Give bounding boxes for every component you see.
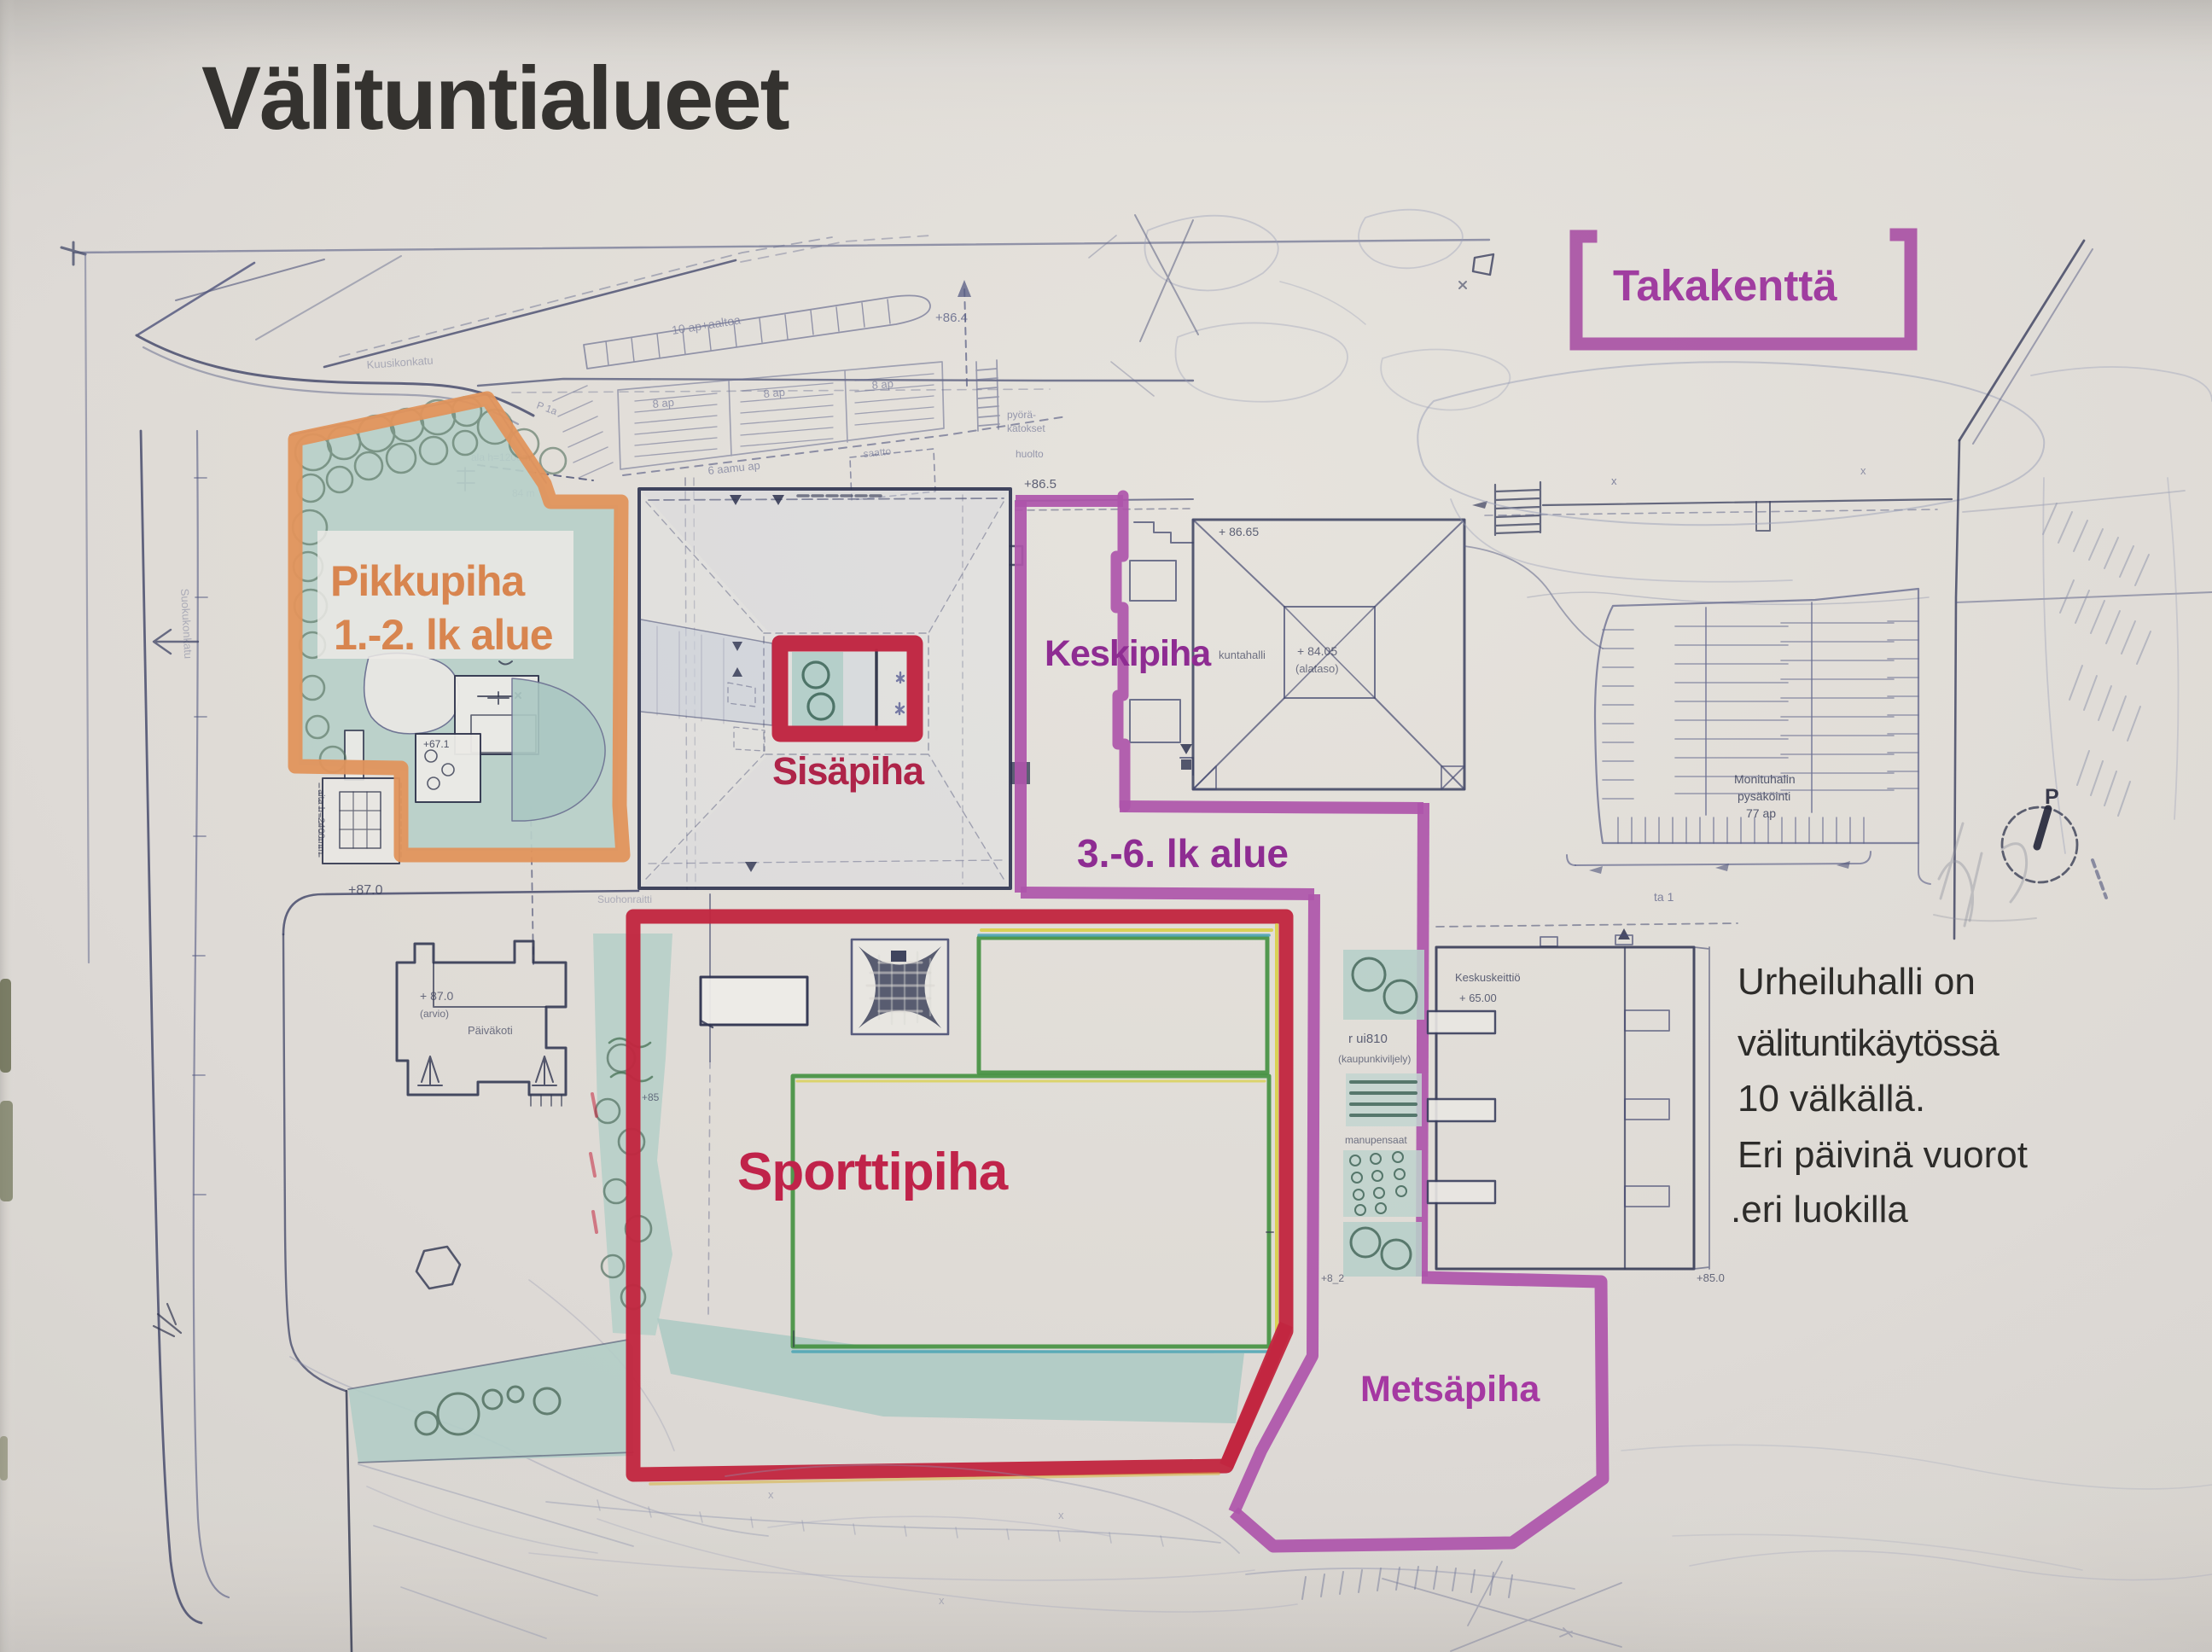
svg-text:välituntikäytössä: välituntikäytössä: [1738, 1022, 2000, 1064]
svg-text:+85: +85: [642, 1091, 660, 1103]
svg-text:ta 1: ta 1: [1654, 890, 1674, 904]
svg-text:manupensaat: manupensaat: [1345, 1134, 1407, 1146]
svg-text:kuntahalli: kuntahalli: [1219, 649, 1266, 661]
svg-text:x: x: [1058, 1509, 1064, 1521]
svg-text:+ 86.65: + 86.65: [1219, 525, 1259, 538]
svg-text:(kaupunkiviljely): (kaupunkiviljely): [1338, 1053, 1411, 1065]
svg-text:+85.0: +85.0: [1697, 1271, 1725, 1284]
svg-text:1.-2. lk alue: 1.-2. lk alue: [334, 611, 553, 659]
svg-text:3.-6. lk alue: 3.-6. lk alue: [1077, 831, 1289, 875]
svg-text:Suohonraitti: Suohonraitti: [597, 893, 652, 905]
svg-text:huolto: huolto: [1016, 448, 1044, 460]
svg-text:Keskuskeittiö: Keskuskeittiö: [1455, 971, 1521, 984]
svg-text:x: x: [1860, 464, 1866, 477]
svg-text:Sporttipiha: Sporttipiha: [737, 1143, 1009, 1201]
svg-text:8 ap: 8 ap: [871, 377, 894, 392]
svg-text:+ 84.05: + 84.05: [1297, 644, 1337, 658]
svg-text:r ui810: r ui810: [1348, 1032, 1388, 1046]
svg-text:+86.4: +86.4: [935, 311, 968, 325]
svg-text:+8_2: +8_2: [1321, 1272, 1344, 1284]
svg-text:Takakenttä: Takakenttä: [1613, 261, 1837, 310]
svg-text:x: x: [1611, 474, 1617, 487]
svg-text:8 ap: 8 ap: [763, 386, 786, 400]
svg-text:Keskipiha: Keskipiha: [1045, 633, 1212, 674]
svg-text:Monituhalin: Monituhalin: [1734, 772, 1796, 786]
svg-text:77 ap: 77 ap: [1746, 806, 1776, 820]
svg-text:+86.5: +86.5: [1024, 477, 1057, 492]
svg-text:katokset: katokset: [1007, 422, 1045, 434]
svg-text:(alataso): (alataso): [1295, 662, 1339, 675]
svg-text:x: x: [768, 1488, 774, 1501]
svg-text:Päiväkoti: Päiväkoti: [468, 1024, 513, 1037]
svg-text:+87.0: +87.0: [348, 883, 383, 898]
svg-text:x: x: [939, 1594, 945, 1607]
svg-text:Sisäpiha: Sisäpiha: [772, 749, 925, 793]
svg-text:+ 87.0: + 87.0: [420, 989, 454, 1003]
svg-text:aita h=2400mm: aita h=2400mm: [316, 789, 326, 854]
svg-text:Välituntialueet: Välituntialueet: [201, 49, 789, 148]
svg-text:+ 65.00: + 65.00: [1459, 992, 1497, 1004]
svg-text:Pikkupiha: Pikkupiha: [330, 557, 526, 605]
svg-text:Eri päivinä vuorot: Eri päivinä vuorot: [1738, 1134, 2028, 1176]
svg-text:(arvio): (arvio): [420, 1008, 449, 1020]
svg-text:pyörä-: pyörä-: [1007, 409, 1036, 421]
svg-text:P: P: [2045, 785, 2059, 809]
svg-text:Metsäpiha: Metsäpiha: [1360, 1369, 1540, 1410]
svg-text:+67.1: +67.1: [423, 738, 450, 750]
svg-text:.eri luokilla: .eri luokilla: [1731, 1189, 1908, 1230]
svg-text:Urheiluhalli on: Urheiluhalli on: [1738, 961, 1976, 1003]
svg-text:pysäköinti: pysäköinti: [1738, 789, 1790, 803]
svg-text:8 ap: 8 ap: [652, 396, 675, 410]
svg-text:10 välkällä.: 10 välkällä.: [1738, 1078, 1925, 1120]
